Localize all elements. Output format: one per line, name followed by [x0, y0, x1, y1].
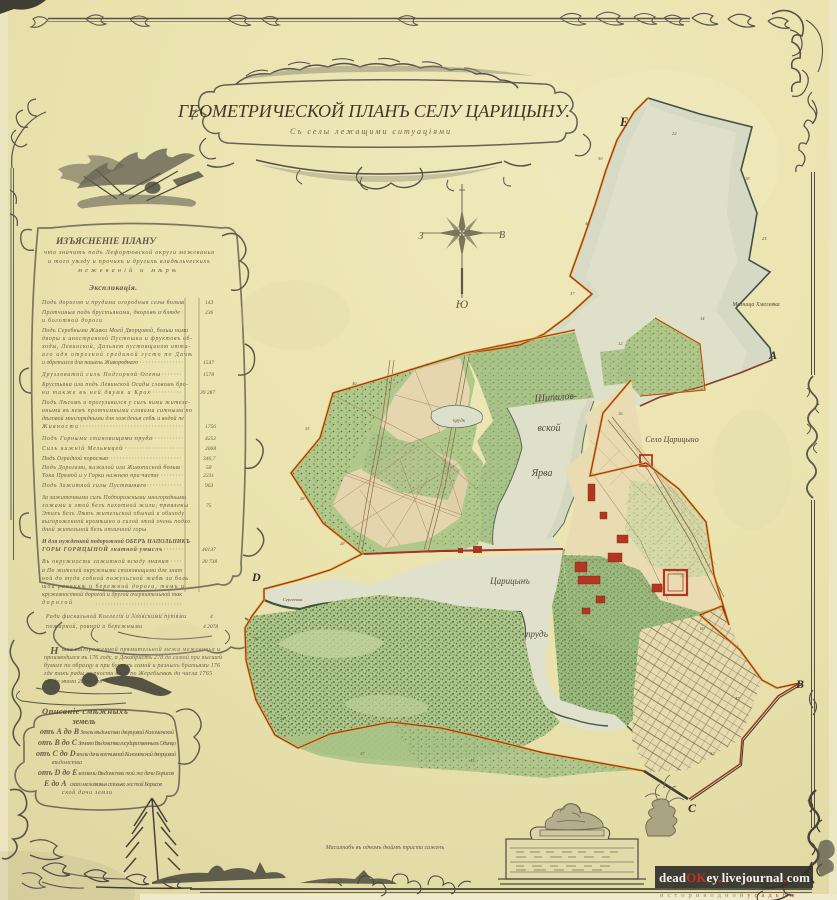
- svg-text:Этихъ безъ Лѣтъ жительской обы: Этихъ безъ Лѣтъ жительской обычай и обих…: [42, 510, 184, 517]
- svg-text:Подъ Горными становищами пруда: Подъ Горными становищами пруда: [41, 435, 152, 442]
- svg-text:ходы, Левинской, Дальнею пусто: ходы, Левинской, Дальнею пустовщиною итт…: [41, 343, 190, 350]
- svg-text:346,7: 346,7: [202, 455, 216, 462]
- svg-text:З: З: [419, 231, 424, 242]
- svg-text:Е: Е: [619, 115, 628, 129]
- svg-text:236: 236: [205, 310, 214, 316]
- svg-text:37: 37: [570, 291, 575, 296]
- svg-text:Мелница Хмелевка: Мелница Хмелевка: [731, 302, 779, 308]
- svg-text:Царицынъ: Царицынъ: [489, 576, 530, 586]
- svg-text:С: С: [688, 801, 697, 815]
- svg-text:Подъ Дорогами, ѣзжалой или Жив: Подъ Дорогами, ѣзжалой или Живописной бо…: [41, 464, 181, 471]
- svg-text:58: 58: [206, 465, 212, 471]
- svg-text:земель: земель: [71, 717, 95, 726]
- svg-text:кружевностной дорогой и другой: кружевностной дорогой и другой очертател…: [42, 591, 182, 598]
- svg-text:1578: 1578: [203, 372, 214, 378]
- svg-text:ИЗЪЯСНЕНІЕ ПЛАНУ: ИЗЪЯСНЕНІЕ ПЛАНУ: [55, 237, 157, 247]
- svg-text:отъ А до В: отъ А до В: [40, 727, 80, 736]
- svg-text:дѣловой многорядными для хожде: дѣловой многорядными для хожденья себѣ и…: [42, 415, 184, 422]
- svg-text:Подъ Серебными Живки Моей Двор: Подъ Серебными Живки Моей Дворцовой, бол…: [41, 327, 188, 334]
- svg-text:24: 24: [280, 716, 285, 721]
- svg-text:40: 40: [352, 381, 357, 386]
- svg-text:30 738: 30 738: [201, 559, 217, 565]
- svg-text:Силъ нижнiй Мельницей: Силъ нижнiй Мельницей: [42, 445, 122, 452]
- svg-text:и обретался для пашень Живород: и обретался для пашень Живороднаго: [42, 359, 138, 366]
- svg-text:выгороженной кромѣшно и силой: выгороженной кромѣшно и силой этой очень…: [42, 518, 190, 525]
- svg-text:За зажиточными силъ Подпорожны: За зажиточными силъ Подпорожными многоря…: [42, 494, 186, 501]
- svg-text:вѣдомства: вѣдомства: [52, 759, 82, 766]
- svg-text:22: 22: [672, 131, 677, 136]
- svg-text:В: В: [795, 677, 804, 691]
- svg-text:4 2078: 4 2078: [203, 623, 218, 630]
- svg-text:Ю: Ю: [455, 297, 469, 311]
- svg-text:25: 25: [762, 236, 767, 241]
- svg-text:1756: 1756: [205, 424, 216, 430]
- svg-text:И для нужденной подорожной ОБЕ: И для нужденной подорожной ОБЕРЪ НАПОЛЬН…: [41, 538, 191, 545]
- svg-text:14: 14: [700, 316, 705, 321]
- svg-text:ГЕОМЕТРИЧЕСКОЙ ПЛАНЪ СЕЛУ ЦАРИ: ГЕОМЕТРИЧЕСКОЙ ПЛАНЪ СЕЛУ ЦАРИЦЫНУ.: [177, 99, 570, 121]
- svg-text:45: 45: [470, 758, 475, 763]
- svg-text:40137: 40137: [202, 546, 216, 553]
- svg-text:Подъ Оградной порослью: Подъ Оградной порослью: [41, 455, 108, 462]
- svg-text:ской дачи земли: ской дачи земли: [62, 789, 112, 796]
- svg-text:прудъ: прудъ: [453, 419, 466, 424]
- svg-text:Подъ Зажитной силы Пустошнаго: Подъ Зажитной силы Пустошнаго: [41, 482, 146, 489]
- svg-text:2231: 2231: [203, 473, 214, 479]
- svg-text:Протчиныя подъ брустьянами, дв: Протчиныя подъ брустьянами, дворовъ и бл…: [41, 309, 180, 316]
- svg-text:прудъ: прудъ: [526, 629, 548, 639]
- svg-text:35: 35: [305, 426, 310, 431]
- svg-text:30: 30: [254, 636, 259, 641]
- svg-text:Село Царицыно: Село Царицыно: [645, 435, 699, 444]
- svg-text:землями Вѣдомства той же дачи: землями Вѣдомства той же дачи Борисов: [77, 770, 174, 777]
- svg-text:Ради фискальной Коллегіи и Азо: Ради фискальной Коллегіи и Азовскими пут…: [45, 613, 186, 620]
- svg-text:1547: 1547: [203, 359, 214, 366]
- svg-text:4: 4: [210, 613, 213, 620]
- svg-text:50: 50: [598, 156, 603, 161]
- svg-text:Брустьяна или подъ Левинской О: Брустьяна или подъ Левинской Осады слово…: [41, 381, 188, 388]
- svg-text:28: 28: [300, 496, 305, 501]
- svg-text:Живности: Живности: [41, 424, 78, 430]
- svg-text:D: D: [251, 570, 261, 584]
- svg-text:вской: вской: [538, 423, 561, 434]
- svg-text:Съ селы лежащими ситуацiями: Съ селы лежащими ситуацiями: [290, 127, 450, 136]
- svg-text:16: 16: [618, 411, 623, 416]
- svg-text:60: 60: [700, 626, 705, 631]
- svg-text:52: 52: [710, 751, 715, 756]
- svg-text:ной до туда собной пожульской: ной до туда собной пожульской жабѣ за бо…: [42, 575, 188, 582]
- svg-text:Е до А: Е до А: [43, 779, 67, 788]
- svg-text:шой равнинѣ и бережной дороги,: шой равнинѣ и бережной дороги, тамъ и: [42, 583, 184, 590]
- svg-text:deadOKey.livejournal.com: deadOKey.livejournal.com: [659, 870, 810, 885]
- svg-text:а По жителей окружными станови: а По жителей окружными становищами для з…: [42, 567, 182, 574]
- svg-text:963: 963: [205, 483, 214, 489]
- svg-text:Масштабъ въ одномъ дюймѣ трист: Масштабъ въ одномъ дюймѣ триста саженъ: [325, 844, 445, 851]
- svg-text:дворы и иностранной Пустошки и: дворы и иностранной Пустошки и фруктовъ …: [42, 335, 192, 342]
- svg-text:46: 46: [585, 221, 590, 226]
- svg-text:скаго межеванья столько же той: скаго межеванья столько же той Борисов: [70, 781, 162, 788]
- svg-text:47: 47: [735, 696, 740, 701]
- svg-text:Землею Вѣдомства государственн: Землею Вѣдомства государственныхъ Одинцо: [78, 740, 176, 747]
- svg-text:2068: 2068: [205, 446, 216, 452]
- svg-text:отъ С до D: отъ С до D: [36, 749, 76, 758]
- svg-text:Въ окружности зажитной всюду з: Въ окружности зажитной всюду знания: [42, 558, 168, 565]
- svg-text:37: 37: [360, 751, 365, 756]
- svg-text:и с т о р и я о д н о й у с: и с т о р и я о д н о й у с а д ь б ы: [660, 892, 796, 899]
- svg-text:Сергеевка: Сергеевка: [283, 597, 303, 602]
- svg-text:Подъ дорогою и прудами огородн: Подъ дорогою и прудами огородныя селы бо…: [41, 299, 185, 306]
- svg-text:нными въ немъ протчимными слов: нными въ немъ протчимными словами ситным…: [42, 408, 192, 414]
- svg-text:и болотной дороги: и болотной дороги: [42, 317, 102, 324]
- svg-text:Ярва: Ярва: [531, 468, 553, 479]
- svg-text:39 287: 39 287: [199, 390, 215, 396]
- svg-text:В: В: [499, 230, 505, 241]
- svg-text:4252: 4252: [205, 435, 216, 442]
- svg-text:Подъ Лѣсомъ и прогуливался у с: Подъ Лѣсомъ и прогуливался у силъ ними ж…: [41, 399, 190, 406]
- svg-text:Описаніе смѣжныхъ: Описаніе смѣжныхъ: [42, 706, 129, 716]
- svg-text:12: 12: [618, 341, 623, 346]
- svg-text:Земли вѣдомства дворцовой Коло: Земли вѣдомства дворцовой Коломенской: [80, 729, 174, 736]
- svg-text:Токи Прямой и у Горки нижнею п: Токи Прямой и у Горки нижнею при части: [42, 472, 158, 479]
- svg-text:А: А: [768, 348, 777, 362]
- svg-text:143: 143: [205, 299, 214, 306]
- svg-text:ни также въ ней двумя и Крох: ни также въ ней двумя и Крох: [42, 389, 150, 396]
- svg-text:ГОРЫ ГОРИЦЫНОЙ знатной умыслъ: ГОРЫ ГОРИЦЫНОЙ знатной умыслъ: [41, 545, 162, 553]
- svg-text:Экспликація.: Экспликація.: [89, 283, 137, 292]
- svg-text:что значитъ подъ Лефортовской: что значитъ подъ Лефортовской округи меж…: [44, 249, 214, 256]
- svg-text:отъ D до Е: отъ D до Е: [38, 768, 78, 777]
- svg-text:18: 18: [745, 176, 750, 181]
- svg-text:28: 28: [340, 541, 345, 546]
- svg-text:ложами и этой безъ пахотной жи: ложами и этой безъ пахотной жили, правле…: [41, 502, 188, 509]
- svg-text:дной жительной безъ отличной г: дной жительной безъ отличной горы: [42, 526, 146, 533]
- svg-text:отъ В до С: отъ В до С: [38, 738, 78, 747]
- svg-text:земли дачи вотчинной Коломенск: земли дачи вотчинной Коломенской дворцов…: [75, 751, 176, 758]
- svg-text:75: 75: [206, 503, 212, 509]
- svg-text:Друзловатой силъ Подгорной Осе: Друзловатой силъ Подгорной Осены: [41, 371, 160, 378]
- svg-text:и того уѣзду и прочихъ и други: и того уѣзду и прочихъ и другихъ владѣль…: [48, 258, 211, 265]
